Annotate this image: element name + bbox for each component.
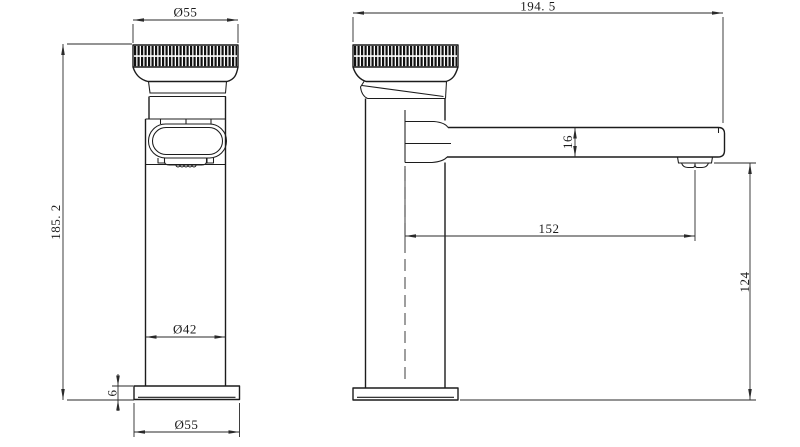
arrowhead [134,430,145,434]
side-spout-boss [405,110,451,163]
arrowhead [227,18,238,22]
arrowhead [116,376,120,387]
dimension-label-side-spout-height: 16 [560,135,575,149]
front-spout-window [149,119,227,167]
arrowhead [229,430,240,434]
front-aerator [165,158,207,165]
side-aerator [678,157,713,163]
arrowhead [712,11,723,15]
side-base-plate [353,388,458,400]
drawing-sheet: Ø55 185. 2 Ø42 6 [0,0,800,447]
dimension-label-side-spout-reach: 152 [539,221,560,236]
front-dimensions: Ø55 185. 2 Ø42 6 [48,5,240,438]
arrowhead [215,335,226,339]
side-view: 194. 5 16 152 124 [353,0,756,400]
front-base-plate [134,386,240,400]
arrowhead [133,18,144,22]
dimension-label-front-top-diameter: Ø55 [174,5,198,20]
dim-front-top-diameter [133,18,238,43]
arrowhead [116,400,120,411]
handle-tilt-line [362,86,444,97]
dimension-label-front-body-diameter: Ø42 [173,322,197,337]
arrowhead [405,234,416,238]
front-view: Ø55 185. 2 Ø42 6 [48,5,240,438]
side-spout-arm [447,128,725,168]
side-aerator-outlet [682,163,709,168]
arrowhead [353,11,364,15]
front-knob-knurled-cap [133,45,238,67]
arrowhead [61,44,65,55]
arrowhead [684,234,695,238]
dim-side-outlet-height [460,163,756,400]
arrowhead [61,389,65,400]
arrowhead [748,163,752,174]
side-knob-knurled-cap [353,45,458,67]
arrowhead [748,389,752,400]
side-neck [353,67,458,99]
dimension-label-front-total-height: 185. 2 [48,204,63,240]
dimension-label-side-total-length: 194. 5 [520,0,556,14]
dim-front-total-height [61,44,134,400]
side-dimensions: 194. 5 16 152 124 [353,0,756,400]
arrowhead [146,335,157,339]
dimension-label-side-outlet-height: 124 [737,272,752,293]
technical-drawing-canvas: Ø55 185. 2 Ø42 6 [0,0,800,447]
front-neck [133,67,238,119]
dimension-label-front-base-thickness: 6 [105,390,120,397]
dimension-label-front-base-diameter: Ø55 [175,417,199,432]
